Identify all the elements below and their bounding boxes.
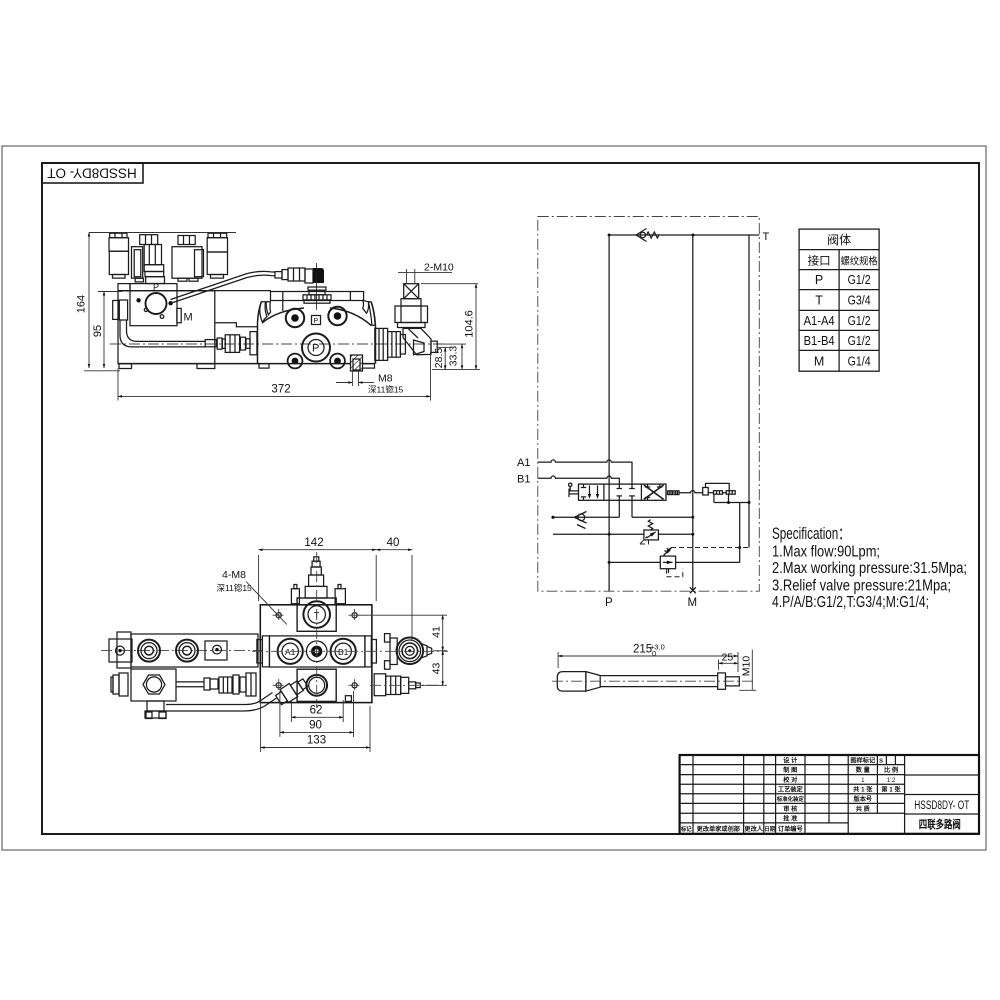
svg-text:133: 133 [307,735,326,747]
svg-text:G1/2: G1/2 [848,273,871,287]
svg-text:Specification：: Specification： [772,525,850,543]
svg-text:43: 43 [431,663,443,675]
svg-text:1:2: 1:2 [887,777,896,784]
svg-text:S: S [879,759,883,765]
svg-text:螺纹规格: 螺纹规格 [841,255,878,268]
svg-text:G3/4: G3/4 [848,294,871,308]
svg-text:P: P [153,282,159,292]
svg-text:A1-A4: A1-A4 [804,314,835,328]
svg-text:P: P [314,318,319,325]
svg-text:G1/2: G1/2 [848,314,871,328]
svg-text:62: 62 [310,705,323,717]
svg-text:1: 1 [861,777,865,784]
svg-text:日期: 日期 [764,825,775,833]
svg-text:四联多路阀: 四联多路阀 [919,817,961,831]
svg-text:更改单家或创部: 更改单家或创部 [697,825,741,833]
svg-text:深11锪15: 深11锪15 [368,385,404,395]
svg-text:164: 164 [76,295,88,313]
svg-text:B1: B1 [338,647,349,657]
svg-text:标准化装定: 标准化装定 [776,795,805,803]
svg-text:95: 95 [92,325,104,337]
svg-text:28.5: 28.5 [433,348,445,369]
svg-text:0: 0 [652,649,656,658]
svg-text:版本号: 版本号 [853,795,873,803]
svg-text:3.Relief valve pressure:21Mpa;: 3.Relief valve pressure:21Mpa; [772,577,951,594]
svg-text:104.6: 104.6 [464,310,476,338]
svg-text:41: 41 [431,626,443,638]
svg-text:B1-B4: B1-B4 [804,334,835,348]
svg-text:深11锪15: 深11锪15 [217,583,253,593]
svg-text:M10: M10 [741,656,753,677]
svg-text:更改人: 更改人 [744,825,763,833]
svg-text:阀体: 阀体 [827,233,851,247]
svg-text:33.3: 33.3 [448,346,460,367]
svg-text:25: 25 [722,652,734,664]
svg-text:比 例: 比 例 [884,766,898,774]
svg-text:P: P [815,273,823,287]
svg-text:4-M8: 4-M8 [222,569,246,581]
svg-text:批 准: 批 准 [783,815,798,823]
svg-text:HSSD8DY- OT: HSSD8DY- OT [47,166,137,181]
svg-text:372: 372 [271,384,290,396]
svg-text:共 1 张: 共 1 张 [853,785,873,793]
svg-text:P: P [312,343,319,355]
svg-text:T: T [763,231,770,243]
svg-text:T: T [815,294,823,308]
svg-text:工艺装定: 工艺装定 [778,785,804,793]
svg-text:M: M [688,597,698,609]
svg-text:2.Max working pressure:31.5Mpa: 2.Max working pressure:31.5Mpa; [772,560,967,577]
svg-text:A1: A1 [517,457,530,469]
svg-text:接口: 接口 [808,255,831,268]
svg-text:审 核: 审 核 [783,805,798,813]
svg-text:订单编号: 订单编号 [778,825,803,833]
svg-text:40: 40 [387,537,400,549]
svg-text:4.P/A/B:G1/2,T:G3/4;M:G1/4;: 4.P/A/B:G1/2,T:G3/4;M:G1/4; [772,594,929,611]
svg-text:P: P [605,597,613,609]
svg-text:制 图: 制 图 [783,766,797,774]
svg-text:2-M10: 2-M10 [424,262,454,274]
svg-text:1.Max flow:90Lpm;: 1.Max flow:90Lpm; [772,544,880,561]
svg-text:设 计: 设 计 [783,756,798,764]
svg-text:A1: A1 [285,647,296,657]
svg-text:M8: M8 [378,373,393,385]
svg-text:G1/2: G1/2 [848,334,871,348]
svg-text:M: M [814,355,824,369]
svg-text:第 1 张: 第 1 张 [880,785,901,793]
svg-text:G1/4: G1/4 [848,355,871,369]
svg-text:90: 90 [309,720,322,732]
svg-text:M: M [184,312,193,324]
svg-text:共 质: 共 质 [856,805,871,813]
svg-text:B1: B1 [517,474,530,486]
svg-text:标记: 标记 [680,825,692,833]
svg-text:校 对: 校 对 [783,776,798,784]
svg-text:142: 142 [304,537,323,549]
svg-text:图样标记: 图样标记 [850,756,876,764]
svg-text:数 量: 数 量 [856,766,871,774]
svg-text:HSSD8DY- OT: HSSD8DY- OT [914,800,969,812]
